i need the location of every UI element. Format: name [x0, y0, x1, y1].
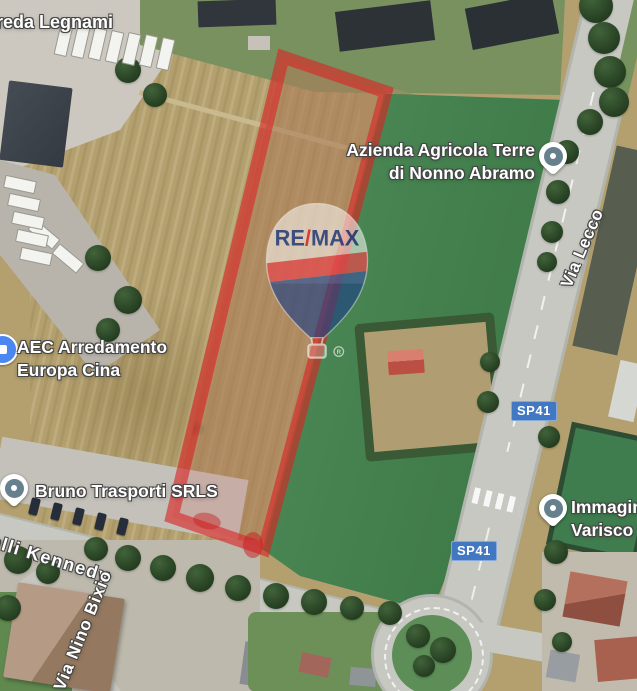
remax-wordmark: RE/MAX — [275, 225, 360, 250]
pin-center-dot — [550, 505, 556, 511]
balloon-basket — [308, 345, 325, 358]
azienda-map-pin[interactable] — [539, 142, 567, 180]
label-legnami[interactable]: reda Legnami — [0, 12, 113, 33]
pin-center-dot — [11, 485, 17, 491]
label-line: Varisco P — [571, 519, 637, 542]
label-aec[interactable]: AEC Arredamento Europa Cina — [17, 336, 167, 382]
route-badge-sp41-south: SP41 — [451, 541, 497, 561]
label-line: di Nonno Abramo — [346, 162, 535, 185]
label-immagine-varisco[interactable]: Immagin Varisco P — [571, 496, 637, 542]
route-badge-sp41-north: SP41 — [511, 401, 557, 421]
satellite-map[interactable]: RE/MAX R reda Legnami Azienda Agricola T… — [0, 0, 637, 691]
pin-center-dot — [550, 153, 556, 159]
label-line: AEC Arredamento — [17, 336, 167, 359]
bruno-map-pin[interactable] — [0, 474, 28, 512]
registered-mark: R — [337, 349, 342, 356]
label-line: Immagin — [571, 496, 637, 519]
remax-balloon-watermark: RE/MAX R — [256, 200, 378, 362]
immagine-map-pin[interactable] — [539, 494, 567, 532]
label-line: Europa Cina — [17, 359, 167, 382]
label-azienda-agricola[interactable]: Azienda Agricola Terre di Nonno Abramo — [346, 139, 535, 185]
label-bruno-trasporti[interactable]: Bruno Trasporti SRLS — [35, 481, 218, 502]
label-line: Azienda Agricola Terre — [346, 139, 535, 162]
